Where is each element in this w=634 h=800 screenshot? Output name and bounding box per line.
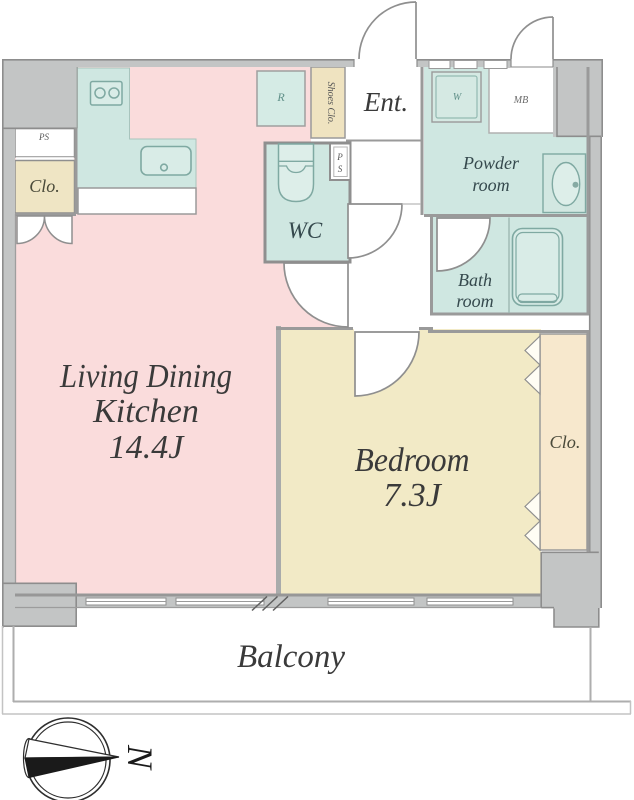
svg-text:Living Dining: Living Dining: [59, 358, 232, 395]
svg-text:Powder: Powder: [462, 153, 520, 173]
svg-text:N: N: [120, 744, 160, 771]
svg-text:WC: WC: [288, 218, 323, 243]
svg-text:room: room: [472, 175, 509, 195]
svg-text:Bedroom: Bedroom: [355, 442, 470, 479]
svg-text:MB: MB: [513, 95, 528, 106]
svg-text:R: R: [276, 90, 285, 104]
svg-text:Bath: Bath: [458, 270, 492, 290]
svg-text:Shoes Clo.: Shoes Clo.: [325, 82, 336, 125]
svg-text:P: P: [336, 152, 343, 162]
svg-text:Ent.: Ent.: [363, 87, 408, 117]
svg-text:S: S: [338, 164, 343, 174]
svg-text:Clo.: Clo.: [550, 432, 581, 452]
svg-text:Clo.: Clo.: [29, 176, 60, 196]
svg-text:Kitchen: Kitchen: [92, 393, 199, 430]
svg-text:14.4J: 14.4J: [109, 429, 186, 466]
svg-text:Balcony: Balcony: [237, 639, 345, 675]
svg-text:PS: PS: [38, 132, 49, 142]
svg-text:room: room: [456, 291, 493, 311]
svg-text:7.3J: 7.3J: [383, 477, 443, 514]
